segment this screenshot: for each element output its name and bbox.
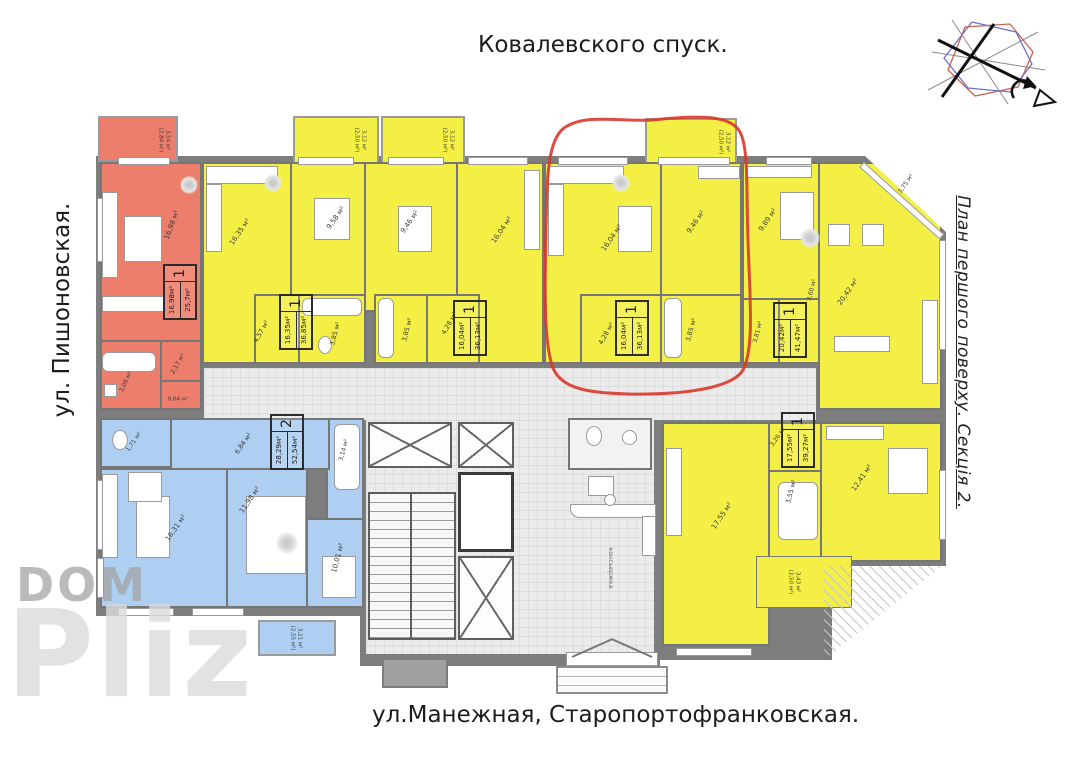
window xyxy=(118,157,170,165)
label-concierge: консьержка xyxy=(606,547,614,588)
stair-divider xyxy=(410,494,412,638)
plan-title: План першого поверху. Секція 2. xyxy=(953,195,973,509)
bathtub xyxy=(378,298,394,358)
plant-icon xyxy=(800,228,820,248)
label-closet-a1: 0,64 м² xyxy=(168,397,188,404)
entrance-porch xyxy=(556,666,668,694)
bathtub xyxy=(778,482,818,540)
stamp-a7: 17,55м²39,27м² 1 xyxy=(781,412,815,468)
side-stoop xyxy=(382,658,448,688)
sofa xyxy=(834,336,890,352)
street-label-left: ул. Пишоновская. xyxy=(49,203,75,418)
street-label-top: Ковалевского спуск. xyxy=(478,32,728,58)
shaft-1 xyxy=(368,422,452,468)
concierge-chair xyxy=(604,494,616,506)
cabinet xyxy=(128,472,162,502)
sofa xyxy=(666,448,682,536)
floor-plan: Ковалевского спуск. ул. Пишоновская. ул.… xyxy=(0,0,1086,768)
window xyxy=(939,470,946,540)
stamp-a2: 16,35м²36,85м² 1 xyxy=(279,294,313,350)
bathtub xyxy=(102,352,156,372)
staircase xyxy=(368,492,456,640)
kitchen-counter xyxy=(826,426,884,440)
sofa xyxy=(524,170,540,250)
watermark-word2: Pliz xyxy=(6,586,254,725)
shaft-2 xyxy=(458,422,514,468)
room-kitchen-a4 xyxy=(660,162,742,312)
lobby-wc xyxy=(568,418,652,470)
sofa xyxy=(102,192,118,278)
table xyxy=(124,216,162,262)
kitchen-counter xyxy=(102,296,166,312)
stamp-a3: 16,04м²36,13м² 1 xyxy=(453,300,487,356)
kitchen-counter xyxy=(746,166,812,178)
sofa xyxy=(206,184,222,252)
plant-icon xyxy=(180,176,198,194)
sink-icon xyxy=(622,430,637,445)
window xyxy=(939,240,946,350)
table xyxy=(888,448,928,494)
stamp-a5: 20,42м²41,47м² 1 xyxy=(773,302,807,358)
concierge-desk xyxy=(588,476,614,496)
washer xyxy=(104,384,117,397)
plant-icon xyxy=(264,174,282,192)
armchair xyxy=(862,224,884,246)
window xyxy=(298,157,354,165)
stamp-a4: 16,04м²36,13м² 1 xyxy=(615,300,649,356)
shaft-3 xyxy=(458,556,514,640)
compass-icon xyxy=(920,12,1070,112)
bathtub xyxy=(664,298,682,358)
label-balcony-a2: 3,12 м² (2,50 м²) xyxy=(353,128,366,153)
sofa xyxy=(922,300,938,384)
window xyxy=(658,157,730,165)
room-stamp-zone-a6 xyxy=(302,418,330,470)
room-closet-a1 xyxy=(160,380,202,410)
window xyxy=(388,157,444,165)
canopy-hatch xyxy=(824,566,942,660)
plant-icon xyxy=(612,174,630,192)
label-balcony-a6: 3,21 м² (2,55 м²) xyxy=(289,626,302,651)
kitchen-counter xyxy=(698,166,740,179)
elevator xyxy=(458,472,514,552)
label-balcony-a1: 3,54 м² (2,84 м²) xyxy=(157,128,170,153)
window xyxy=(558,157,628,165)
table xyxy=(136,496,170,558)
street-label-bottom: ул.Манежная, Старопортофранковская. xyxy=(372,702,859,728)
corridor xyxy=(204,368,804,420)
bed xyxy=(246,496,306,574)
stamp-a1: 16,98м²25,7м² 1 xyxy=(163,264,197,320)
label-balcony-a7: 3,43 м² (2,50 м²) xyxy=(787,570,800,595)
armchair xyxy=(828,224,850,246)
plant-icon xyxy=(276,532,298,554)
label-balcony-a4: 3,12 м² (2,50 м²) xyxy=(717,130,730,155)
window xyxy=(676,648,752,656)
sofa xyxy=(102,474,118,558)
concierge-counter-return xyxy=(642,516,656,556)
window xyxy=(766,157,812,165)
sofa xyxy=(548,184,564,256)
stamp-a6: 28,29м²52,54м² 2 xyxy=(270,414,304,470)
toilet-icon xyxy=(586,426,602,446)
window xyxy=(468,157,528,165)
label-balcony-a3: 3,12 м² (2,50 м²) xyxy=(441,128,454,153)
